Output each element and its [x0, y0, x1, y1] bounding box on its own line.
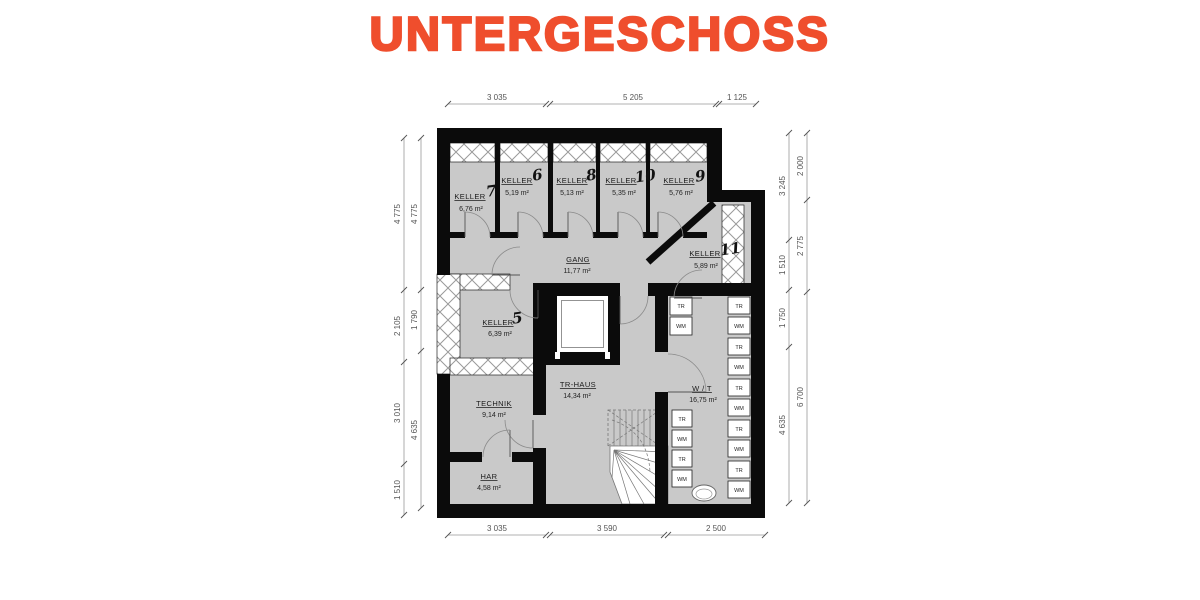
dimensions-left-inner: 4 775 1 790 4 635	[410, 135, 424, 511]
appliance-box: WM	[728, 358, 750, 375]
hatched-strip	[650, 143, 707, 162]
dimension-label: 5 205	[623, 93, 644, 102]
svg-text:W / T: W / T	[692, 384, 712, 393]
appliance-label: WM	[677, 477, 687, 483]
svg-text:16,75 m²: 16,75 m²	[689, 397, 717, 404]
svg-text:KELLER: KELLER	[501, 176, 532, 185]
appliance-box: TR	[728, 297, 750, 314]
dimension-label: 3 590	[597, 524, 618, 533]
svg-text:6,39 m²: 6,39 m²	[488, 331, 512, 338]
appliance-box: TR	[728, 379, 750, 396]
appliance-label: TR	[735, 468, 742, 474]
appliance-box: TR	[728, 338, 750, 355]
appliance-label: WM	[734, 447, 744, 453]
appliance-label: WM	[734, 406, 744, 412]
appliance-label: WM	[734, 324, 744, 330]
floorplan-drawing: TR WM TR WM TR WM TR WM TR WM TR WM TR W…	[0, 0, 1200, 600]
svg-text:5,19 m²: 5,19 m²	[505, 190, 529, 197]
appliance-label: WM	[676, 324, 686, 330]
appliance-box: TR	[672, 410, 692, 427]
appliance-label: TR	[735, 427, 742, 433]
floorplan-page: UNTERGESCHOSS	[0, 0, 1200, 600]
appliance-label: TR	[735, 304, 742, 310]
appliance-box: WM	[672, 430, 692, 447]
dimensions-left-outer: 4 775 2 105 3 010 1 510	[393, 135, 407, 518]
svg-text:11,77 m²: 11,77 m²	[563, 268, 591, 275]
dimension-label: 2 105	[393, 315, 402, 336]
dimension-label: 2 500	[706, 524, 727, 533]
appliance-box: TR	[672, 450, 692, 467]
svg-text:HAR: HAR	[480, 472, 497, 481]
appliance-box: TR	[670, 297, 692, 315]
dimension-label: 2 000	[796, 155, 805, 176]
svg-text:4,58 m²: 4,58 m²	[477, 485, 501, 492]
dimension-label: 2 775	[796, 235, 805, 256]
appliance-label: WM	[677, 437, 687, 443]
dimensions-right-inner: 3 245 1 510 1 750 4 635	[778, 130, 792, 506]
appliance-label: WM	[734, 365, 744, 371]
elevator-shaft	[545, 283, 620, 365]
dimension-label: 4 775	[410, 203, 419, 224]
dimension-label: 3 010	[393, 402, 402, 423]
appliance-box: WM	[728, 399, 750, 416]
hatched-strip	[450, 358, 535, 375]
dimension-label: 1 750	[778, 307, 787, 328]
svg-text:TECHNIK: TECHNIK	[476, 399, 512, 408]
dimension-label: 4 775	[393, 203, 402, 224]
sink	[692, 485, 716, 501]
svg-text:5,76 m²: 5,76 m²	[669, 190, 693, 197]
appliance-box: WM	[728, 440, 750, 457]
dimension-label: 3 035	[487, 524, 508, 533]
dimensions-top: 3 035 5 205 1 125	[445, 93, 759, 107]
appliance-box: TR	[728, 420, 750, 437]
svg-text:6,76 m²: 6,76 m²	[459, 206, 483, 213]
dimension-label: 6 700	[796, 386, 805, 407]
svg-text:TR-HAUS: TR-HAUS	[560, 380, 596, 389]
svg-text:KELLER: KELLER	[663, 176, 694, 185]
hatched-strip	[500, 143, 548, 162]
appliance-box: WM	[672, 470, 692, 487]
dimension-label: 4 635	[410, 419, 419, 440]
hatched-strip	[553, 143, 596, 162]
svg-text:5,35 m²: 5,35 m²	[612, 190, 636, 197]
appliance-box: WM	[728, 317, 750, 334]
svg-text:KELLER: KELLER	[689, 249, 720, 258]
svg-text:9,14 m²: 9,14 m²	[482, 412, 506, 419]
appliance-label: TR	[678, 417, 685, 423]
svg-text:KELLER: KELLER	[482, 318, 513, 327]
appliance-label: WM	[734, 488, 744, 494]
svg-text:5,13 m²: 5,13 m²	[560, 190, 584, 197]
dimension-label: 3 035	[487, 93, 508, 102]
svg-text:KELLER: KELLER	[605, 176, 636, 185]
svg-text:10: 10	[634, 166, 658, 187]
svg-text:14,34 m²: 14,34 m²	[563, 393, 591, 400]
dimension-label: 1 510	[778, 254, 787, 275]
appliance-label: TR	[677, 304, 684, 310]
hatched-strip	[600, 143, 646, 162]
dimension-label: 3 245	[778, 175, 787, 196]
appliance-label: TR	[678, 457, 685, 463]
svg-text:KELLER: KELLER	[454, 192, 485, 201]
appliance-box: WM	[728, 481, 750, 498]
dimensions-right-outer: 2 000 2 775 6 700	[796, 130, 810, 506]
dimension-label: 1 125	[727, 93, 748, 102]
svg-text:KELLER: KELLER	[556, 176, 587, 185]
dimension-label: 1 510	[393, 479, 402, 500]
appliance-box: WM	[670, 317, 692, 335]
svg-text:11: 11	[719, 239, 742, 260]
appliance-box: TR	[728, 461, 750, 478]
appliance-label: TR	[735, 345, 742, 351]
hatched-strip	[450, 143, 495, 162]
dimension-label: 4 635	[778, 414, 787, 435]
svg-text:GANG: GANG	[566, 255, 590, 264]
dimensions-bottom: 3 035 3 590 2 500	[445, 524, 768, 538]
dimension-label: 1 790	[410, 309, 419, 330]
appliance-label: TR	[735, 386, 742, 392]
svg-text:5,89 m²: 5,89 m²	[694, 263, 718, 270]
